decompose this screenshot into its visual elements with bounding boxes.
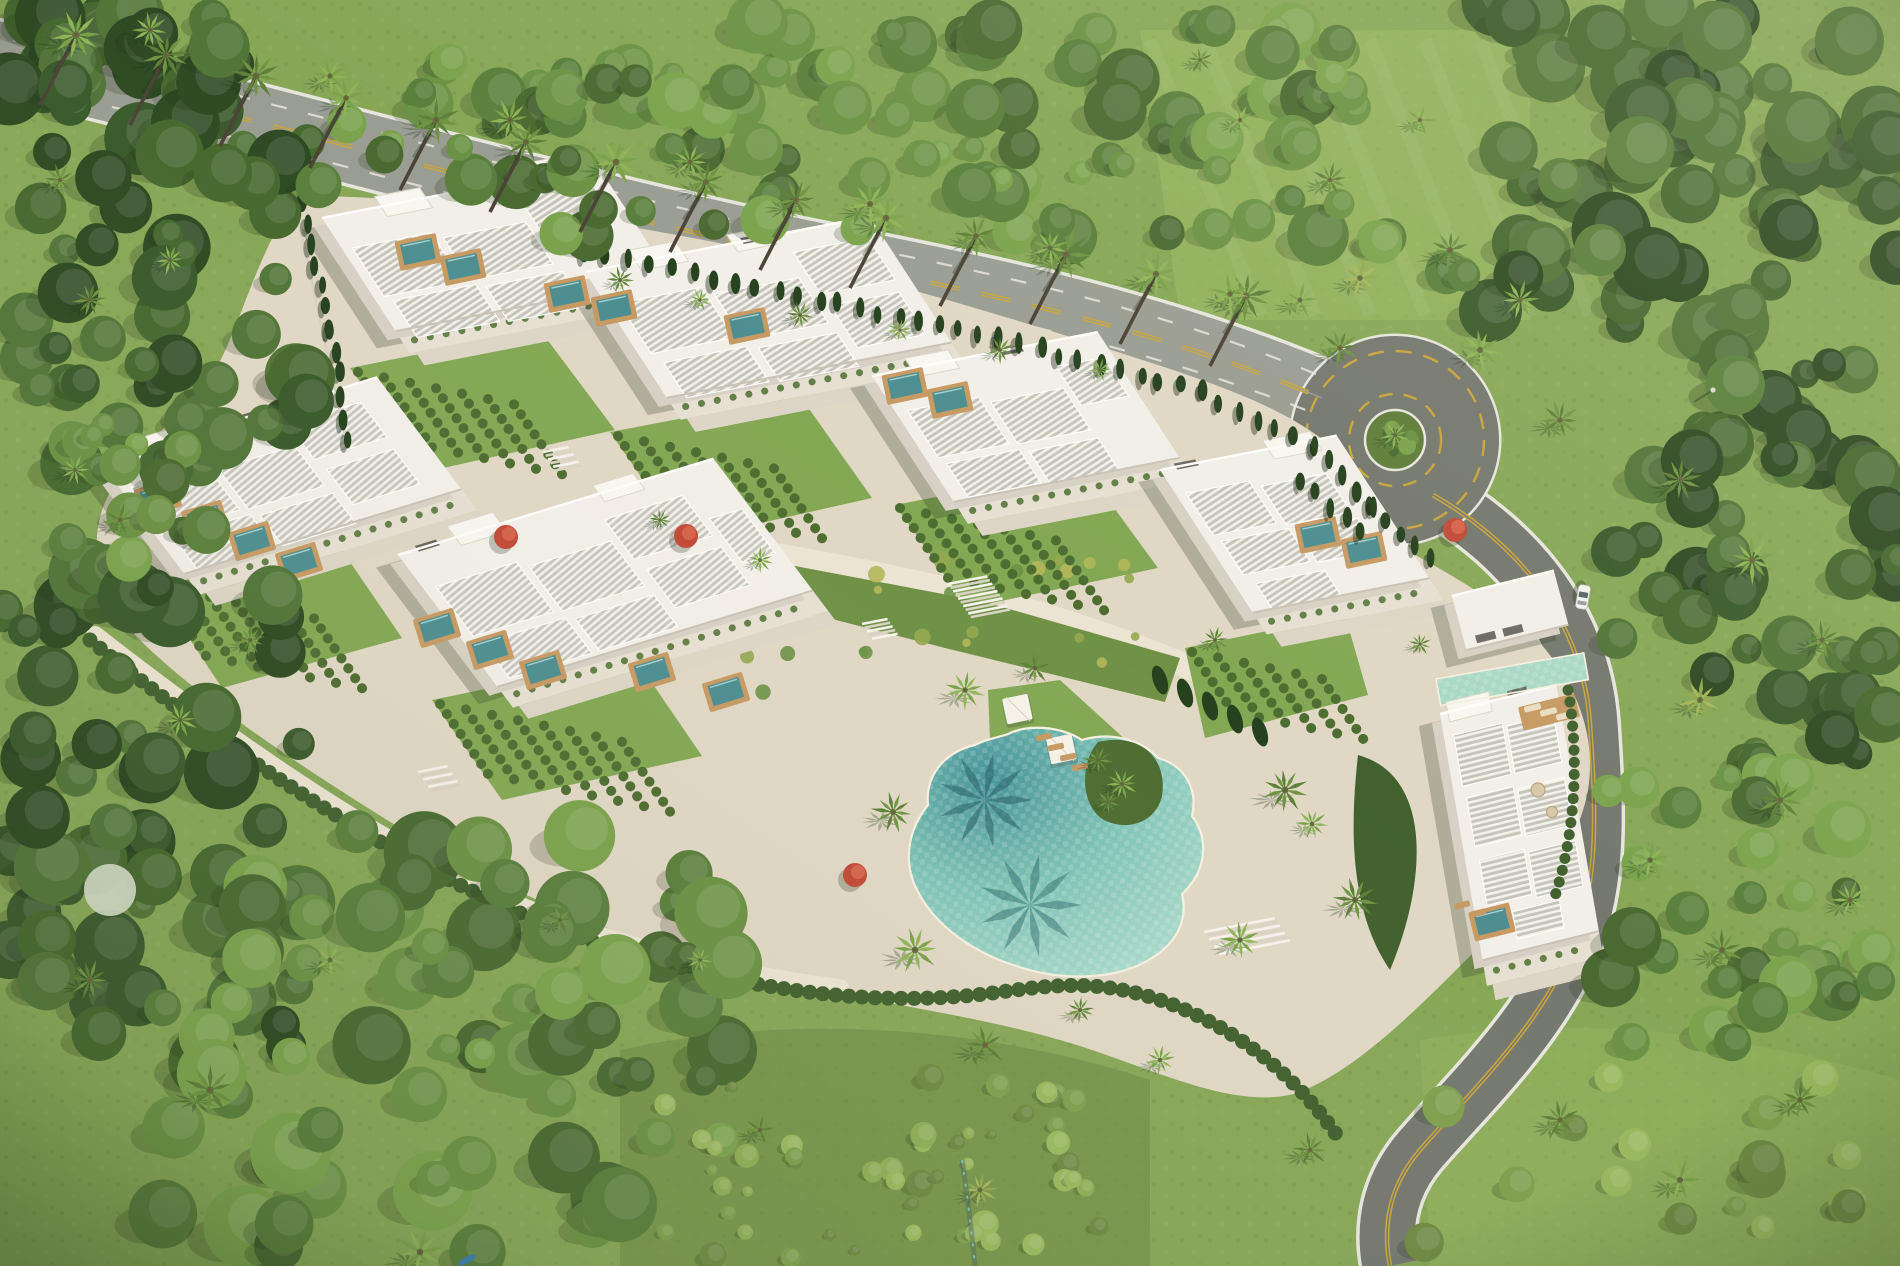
vignette xyxy=(0,0,1900,1266)
light-overlay xyxy=(0,0,1900,1266)
aerial-photo: Aerial view of a tropical luxury villa c… xyxy=(0,0,1900,1266)
aerial-render: Aerial view of a tropical luxury villa c… xyxy=(0,0,1900,1266)
